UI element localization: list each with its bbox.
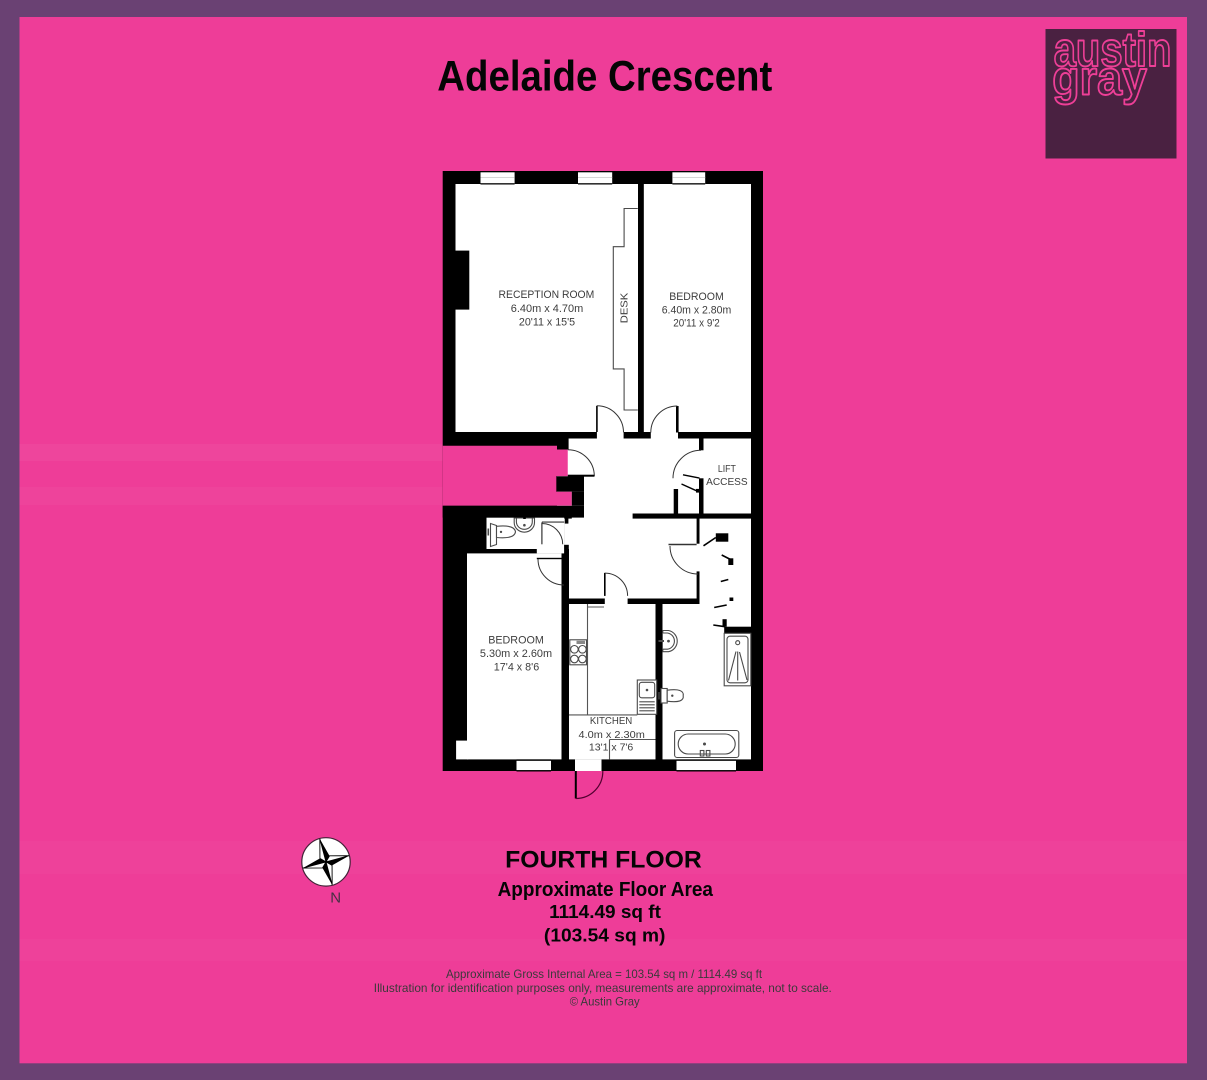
svg-text:13'1 x 7'6: 13'1 x 7'6 bbox=[589, 742, 634, 753]
svg-text:20'11 x 15'5: 20'11 x 15'5 bbox=[519, 316, 575, 328]
svg-text:20'11 x 9'2: 20'11 x 9'2 bbox=[673, 318, 719, 330]
svg-text:Adelaide Crescent: Adelaide Crescent bbox=[437, 53, 772, 101]
svg-text:Illustration for identificatio: Illustration for identification purposes… bbox=[374, 981, 832, 995]
svg-text:4.0m x 2.30m: 4.0m x 2.30m bbox=[579, 730, 645, 741]
svg-text:ACCESS: ACCESS bbox=[706, 477, 748, 488]
svg-text:N: N bbox=[330, 890, 341, 907]
svg-text:5.30m x 2.60m: 5.30m x 2.60m bbox=[480, 648, 552, 660]
svg-text:Approximate Gross Internal Are: Approximate Gross Internal Area = 103.54… bbox=[446, 967, 763, 981]
svg-text:6.40m x 4.70m: 6.40m x 4.70m bbox=[511, 303, 584, 315]
svg-text:LIFT: LIFT bbox=[718, 464, 736, 475]
svg-text:DESK: DESK bbox=[620, 292, 631, 323]
svg-text:1114.49 sq ft: 1114.49 sq ft bbox=[549, 901, 661, 922]
svg-text:6.40m x 2.80m: 6.40m x 2.80m bbox=[662, 305, 732, 317]
svg-text:FOURTH FLOOR: FOURTH FLOOR bbox=[505, 846, 702, 873]
svg-text:17'4 x 8'6: 17'4 x 8'6 bbox=[494, 661, 539, 673]
svg-text:KITCHEN: KITCHEN bbox=[590, 716, 632, 727]
svg-text:BEDROOM: BEDROOM bbox=[488, 635, 544, 647]
svg-text:(103.54 sq m): (103.54 sq m) bbox=[544, 924, 666, 945]
svg-text:Approximate Floor Area: Approximate Floor Area bbox=[498, 879, 714, 901]
svg-text:BEDROOM: BEDROOM bbox=[669, 291, 724, 303]
svg-text:RECEPTION ROOM: RECEPTION ROOM bbox=[499, 289, 595, 301]
svg-text:© Austin Gray: © Austin Gray bbox=[570, 994, 640, 1008]
svg-text:gray: gray bbox=[1052, 53, 1147, 106]
